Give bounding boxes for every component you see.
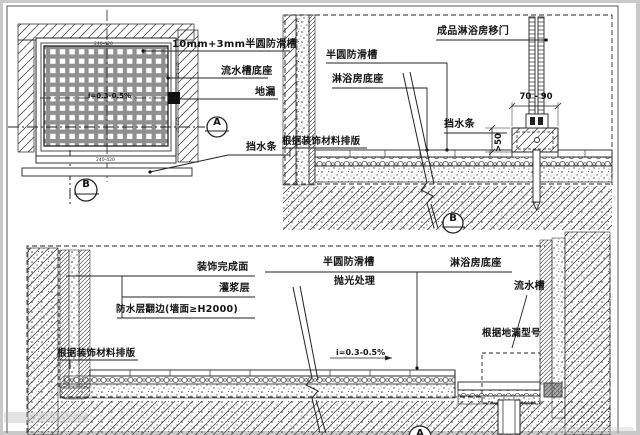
- plan-dim-right-upper: 25-125: [173, 62, 184, 78]
- bubble-a-letter: A: [211, 117, 223, 128]
- cad-drawing-canvas: 10mm+3mm半圆防滑槽 流水槽底座 地漏 挡水条 A B 240-420 2…: [0, 0, 640, 435]
- sa-floor-tile: [90, 370, 455, 376]
- sa-label-shower-base: 淋浴房底座: [450, 258, 502, 269]
- sa-label-drain-model: 根据地漏型号: [482, 328, 541, 339]
- sa-label-groove: 半圆防滑槽: [323, 257, 375, 268]
- bubble-b-letter: B: [80, 179, 92, 190]
- plan-label-groove: 10mm+3mm半圆防滑槽: [172, 39, 297, 50]
- sb-wall-tile: [309, 15, 315, 185]
- sa-wall-plaster: [69, 250, 79, 388]
- sa-label-finish-surface: 装饰完成面: [197, 262, 249, 273]
- sa-rwall-plaster: [552, 238, 565, 418]
- plan-label-drain: 地漏: [255, 87, 276, 98]
- sb-dim-height: >50: [494, 133, 505, 152]
- sa-mortar-bed: [64, 376, 455, 384]
- bubble-a2-letter: A: [414, 428, 426, 435]
- sb-label-door: 成品淋浴房移门: [437, 26, 509, 37]
- sa-channel-tile: [458, 382, 540, 390]
- sb-screed: [315, 166, 612, 182]
- sb-floor-tile: [315, 150, 512, 157]
- plan-water-bar-strip: [22, 168, 192, 176]
- sb-label-wall-finish: 根据装饰材料排版: [282, 136, 360, 147]
- sb-anchor-shaft: [533, 150, 540, 202]
- watermark: [4, 412, 88, 423]
- sb-anchor-head: [535, 138, 540, 143]
- sa-wall-tile: [79, 250, 90, 388]
- sa-wall-membrane: [60, 250, 69, 388]
- sa-screed: [60, 384, 455, 398]
- sa-rwall-tile: [540, 240, 552, 384]
- plan-slope-text: i=0.3-0.5%: [88, 91, 131, 102]
- sb-label-water-bar: 挡水条: [444, 119, 475, 130]
- sa-label-wall-finish: 根据装饰材料排版: [57, 348, 135, 359]
- sb-wall-plaster: [296, 15, 309, 185]
- sb-label-shower-base: 淋浴房底座: [332, 74, 384, 85]
- bubble-b2-letter: B: [447, 213, 459, 224]
- sb-dim-width: 70 - 90: [513, 92, 559, 103]
- plan-dim-bottom: 240-420: [96, 155, 115, 166]
- sb-door-section: [526, 17, 548, 128]
- sb-label-groove: 半圆防滑槽: [326, 50, 378, 61]
- plan-label-water-bar: 挡水条: [246, 142, 277, 153]
- drawing-linework: [0, 0, 640, 435]
- sa-label-polish: 抛光处理: [334, 276, 375, 287]
- plan-label-channel-base: 流水槽底座: [221, 66, 273, 77]
- watermark-2: [548, 427, 634, 434]
- plan-dim-right-lower: 25-125: [173, 117, 184, 133]
- sb-mortar-bed: [315, 157, 612, 166]
- plan-dim-top: 240-420: [94, 39, 113, 50]
- sa-slope-text: i=0.3-0.5%: [336, 347, 385, 358]
- sa-label-waterproof: 防水层翻边(墙面≥H2000): [116, 304, 238, 315]
- sa-label-water-channel: 流水槽: [514, 281, 545, 292]
- sa-label-grout: 灌浆层: [219, 283, 250, 294]
- plan-wall-left: [18, 40, 34, 152]
